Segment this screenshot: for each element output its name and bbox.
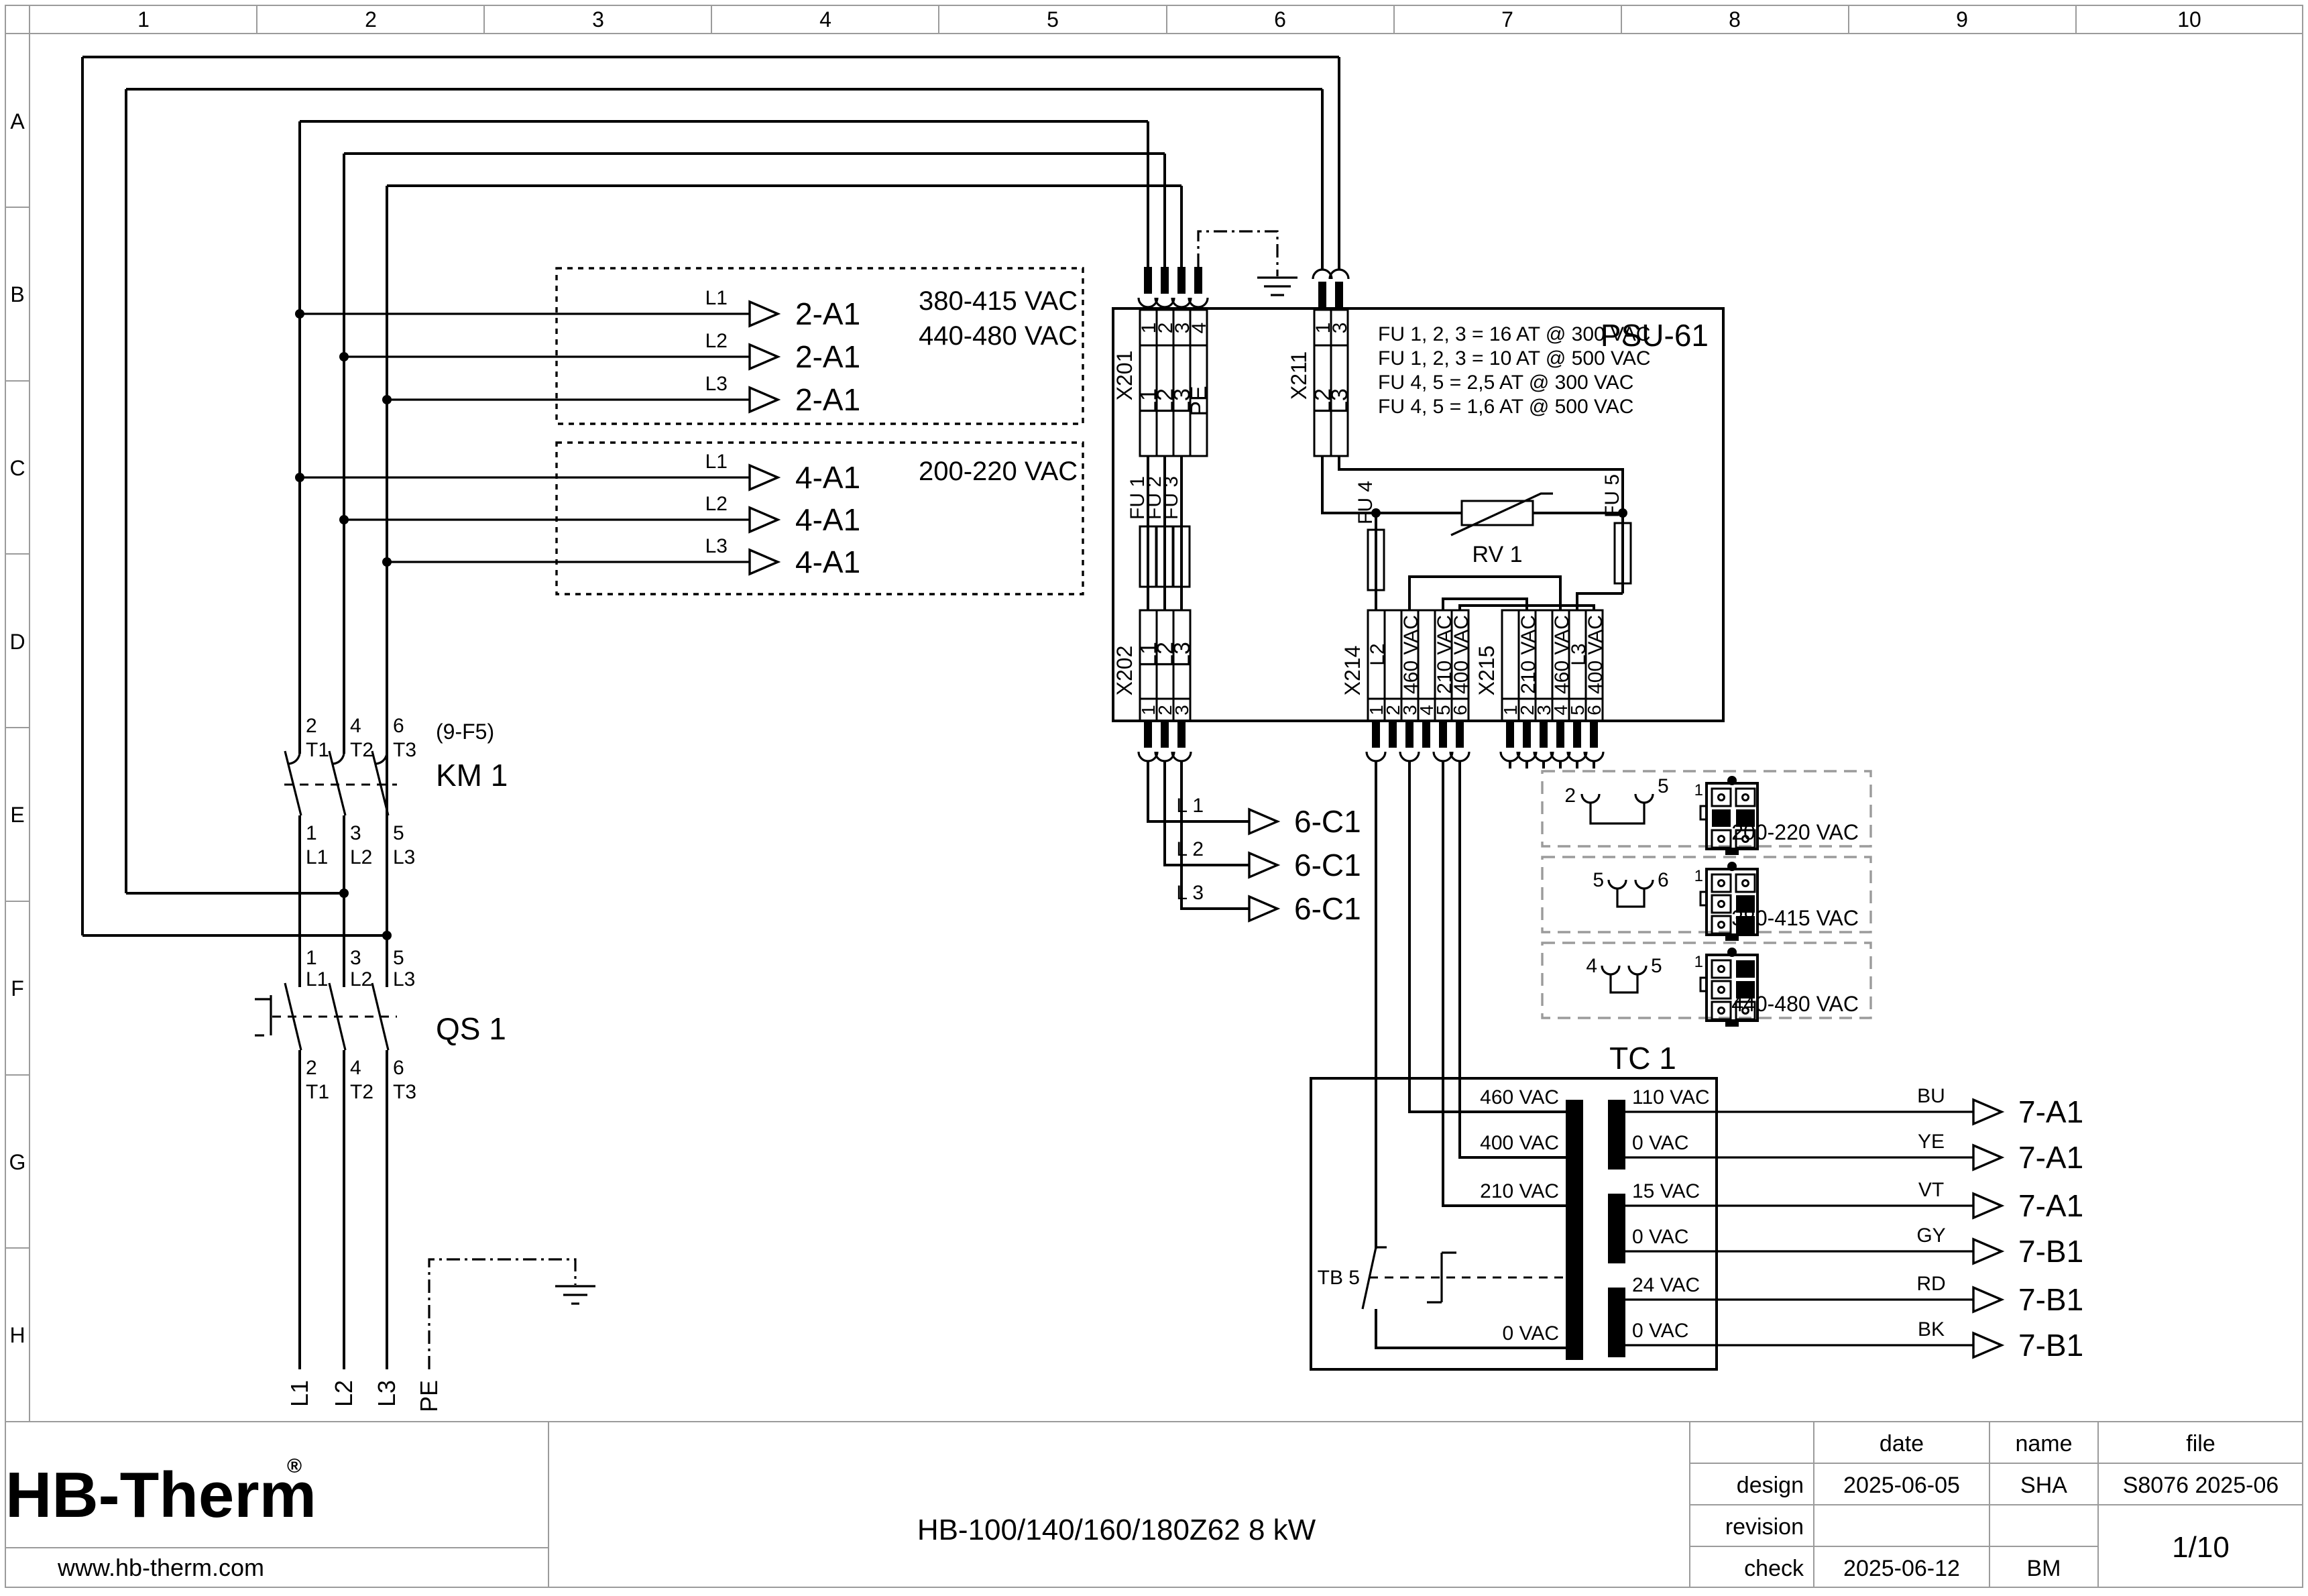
ruler-col: 7 xyxy=(1501,7,1513,32)
terminal-block-x214: X214 L2 460 VAC 210 VAC 400 VAC 1 2 3 4 … xyxy=(1340,610,1473,721)
disconnect-ref: QS 1 xyxy=(436,1011,506,1046)
signal-target: 7-A1 xyxy=(2018,1094,2083,1129)
fuse-note: FU 1, 2, 3 = 10 AT @ 500 VAC xyxy=(1378,347,1651,369)
terminal-pin: 6 xyxy=(1584,705,1605,716)
terminal-no: 4 xyxy=(350,1057,361,1079)
ruler-row: C xyxy=(9,456,25,480)
terminal-code: L2 xyxy=(350,968,372,990)
company-website: www.hb-therm.com xyxy=(57,1554,264,1581)
feed-group-4A1: L1 L2 L3 4-A1 4-A1 4-A1 200-220 VAC xyxy=(295,443,1083,594)
terminal-ref: X215 xyxy=(1475,646,1499,696)
secondary-tap: 0 VAC xyxy=(1632,1226,1688,1248)
terminal-block-x201: X201 1 2 3 4 L1 L2 L3 PE xyxy=(1112,310,1212,456)
signal-target: 4-A1 xyxy=(795,460,860,495)
terminal-no: 2 xyxy=(306,1057,317,1079)
terminal-block-x215: X215 210 VAC 460 VAC L3 400 VAC 1 2 3 4 … xyxy=(1475,610,1607,721)
thermal-label: TB 5 xyxy=(1318,1267,1360,1289)
contact-blade xyxy=(329,751,345,815)
control-feeds-6C1: L 1 L 2 L 3 6-C1 6-C1 6-C1 xyxy=(1148,761,1361,926)
ruler-frame: 1 2 3 4 5 6 7 8 9 10 A B C D E F G H xyxy=(5,5,2303,1587)
ruler-col: 5 xyxy=(1047,7,1059,32)
terminal-label: 460 VAC xyxy=(1400,615,1422,694)
signal-arrow xyxy=(750,465,778,490)
secondary-tap: 110 VAC xyxy=(1632,1086,1710,1108)
varistor-label: RV 1 xyxy=(1473,542,1523,567)
ruler-row: A xyxy=(10,109,25,133)
signal-arrow xyxy=(750,508,778,532)
signal-target: 2-A1 xyxy=(795,296,860,331)
terminal-no: 4 xyxy=(350,715,361,737)
jumper-pin-b: 6 xyxy=(1658,869,1669,891)
wire-color: BU xyxy=(1917,1085,1945,1107)
fuse-fu5: FU 5 xyxy=(1577,474,1631,610)
voltage-range: 440-480 VAC xyxy=(1731,992,1859,1016)
voltage-range: 380-415 VAC xyxy=(1731,906,1859,930)
terminal-label: L2 xyxy=(1367,643,1389,665)
fuses-fu123: FU 1 FU 2 FU 3 xyxy=(1127,456,1190,610)
terminal-label: 210 VAC xyxy=(1517,615,1540,694)
company-logo: HB-Therm xyxy=(5,1459,316,1531)
wires-tc1-primary xyxy=(1376,761,1566,1348)
transformer-ref: TC 1 xyxy=(1609,1041,1676,1076)
terminal-no: 6 xyxy=(393,715,404,737)
voltage-range: 200-220 VAC xyxy=(919,457,1078,486)
ruler-col: 9 xyxy=(1956,7,1968,32)
terminal-code: L3 xyxy=(393,846,415,868)
tb-design-name: SHA xyxy=(2020,1473,2067,1498)
signal-arrow xyxy=(750,388,778,412)
phase-label: L2 xyxy=(705,493,728,515)
terminal-code: L2 xyxy=(350,846,372,868)
signal-target: 6-C1 xyxy=(1294,891,1361,926)
terminal-code: L3 xyxy=(393,968,415,990)
signal-target: 2-A1 xyxy=(795,382,860,417)
mains-label: PE xyxy=(415,1380,443,1412)
ruler-col: 10 xyxy=(2177,7,2201,32)
fuse-label: FU 4 xyxy=(1354,481,1377,524)
ruler-row: D xyxy=(9,630,25,654)
tb-header-file: file xyxy=(2186,1431,2215,1457)
terminal-ref: X211 xyxy=(1287,351,1311,400)
secondary-outputs: 110 VAC 0 VAC 15 VAC 0 VAC 24 VAC 0 VAC … xyxy=(1625,1085,2083,1363)
terminal-no: 3 xyxy=(350,947,361,969)
terminal-no: 5 xyxy=(393,947,404,969)
signal-target: 7-B1 xyxy=(2018,1282,2083,1317)
connector-pin1-label: 1 xyxy=(1694,867,1703,885)
signal-arrow xyxy=(1249,853,1277,877)
signal-arrow xyxy=(750,302,778,326)
doc-title: HB-100/140/160/180Z62 8 kW xyxy=(917,1514,1316,1546)
secondary-tap: 15 VAC xyxy=(1632,1180,1700,1202)
secondary-winding-3 xyxy=(1608,1288,1625,1357)
fuse-label: FU 5 xyxy=(1601,474,1623,518)
tb-design-date: 2025-06-05 xyxy=(1843,1473,1960,1498)
ruler-col: 8 xyxy=(1729,7,1741,32)
terminal-ref: X214 xyxy=(1340,646,1365,696)
phase-label: L2 xyxy=(705,330,728,352)
primary-tap: 210 VAC xyxy=(1480,1180,1559,1202)
secondary-winding-1 xyxy=(1608,1100,1625,1170)
primary-tap: 0 VAC xyxy=(1503,1322,1559,1345)
contact-hook xyxy=(333,754,344,764)
jumper-option-380-415: 5 6 1 380-415 VAC xyxy=(1542,857,1871,941)
ruler-col: 6 xyxy=(1274,7,1286,32)
phase-label: L3 xyxy=(705,535,728,557)
fuse-note: FU 4, 5 = 1,6 AT @ 500 VAC xyxy=(1378,396,1633,418)
wire-color: VT xyxy=(1918,1179,1944,1201)
secondary-tap: 0 VAC xyxy=(1632,1132,1688,1154)
terminal-no: 6 xyxy=(393,1057,404,1079)
connector-pin1-label: 1 xyxy=(1694,953,1703,971)
tb-header-name: name xyxy=(2015,1431,2072,1457)
fuse-label: FU 3 xyxy=(1160,476,1182,520)
contact-hook xyxy=(376,754,387,764)
primary-tap: 400 VAC xyxy=(1480,1132,1559,1154)
phase-label: L 1 xyxy=(1176,795,1204,817)
tb-row-label: revision xyxy=(1725,1514,1804,1540)
secondary-tap: 24 VAC xyxy=(1632,1274,1700,1296)
secondary-winding-2 xyxy=(1608,1194,1625,1263)
jumper-option-440-480: 4 5 1 440-480 VAC xyxy=(1542,943,1871,1027)
contactor-km1: 2 4 6 T1 T2 T3 1 3 5 L1 L2 L3 (9-F5) KM … xyxy=(284,715,508,868)
jumper-pin-b: 5 xyxy=(1658,775,1669,797)
title-block: HB-Therm ® www.hb-therm.com HB-100/140/1… xyxy=(5,1422,2303,1587)
signal-target: 6-C1 xyxy=(1294,848,1361,882)
ruler-row: F xyxy=(11,976,24,1001)
tb-header-date: date xyxy=(1880,1431,1924,1457)
contact-hook xyxy=(289,754,300,764)
earth-symbol-mains xyxy=(555,1286,595,1304)
signal-arrow xyxy=(1973,1194,2002,1218)
tb-row-label: design xyxy=(1737,1473,1804,1498)
tb-file-no: S8076 2025-06 xyxy=(2123,1473,2279,1498)
connector-pin1-label: 1 xyxy=(1694,781,1703,799)
terminal-label: 400 VAC xyxy=(1450,615,1473,694)
phase-label: L1 xyxy=(705,451,728,473)
tb-check-name: BM xyxy=(2027,1556,2061,1581)
plug-connectors-bottom xyxy=(1139,722,1603,761)
signal-target: 4-A1 xyxy=(795,545,860,579)
mains-label: L3 xyxy=(373,1380,400,1407)
jumper-pin-a: 2 xyxy=(1564,785,1576,807)
jumper-pin-a: 4 xyxy=(1586,955,1597,977)
terminal-block-x211: X211 1 3 L2 L3 xyxy=(1287,310,1352,456)
terminal-code: T1 xyxy=(306,1081,329,1103)
terminal-ref: X202 xyxy=(1112,646,1137,696)
terminal-label: PE xyxy=(1186,386,1212,416)
wire-color: GY xyxy=(1916,1224,1945,1247)
terminal-label: 400 VAC xyxy=(1584,615,1607,694)
disconnect-qs1: 1 3 5 L1 L2 L3 2 4 6 T1 T2 T3 QS 1 xyxy=(255,947,506,1103)
wire-color: RD xyxy=(1916,1273,1945,1295)
tb-check-date: 2025-06-12 xyxy=(1843,1556,1960,1581)
voltage-range: 380-415 VAC xyxy=(919,286,1078,316)
ruler-row: B xyxy=(10,282,24,306)
mains-entry: L1 L2 L3 PE xyxy=(286,1259,595,1412)
terminal-pin: 3 xyxy=(1329,323,1351,334)
mains-label: L2 xyxy=(330,1380,357,1407)
phase-label: L1 xyxy=(705,287,728,309)
signal-arrow xyxy=(750,550,778,574)
earth-symbol-psu xyxy=(1198,231,1297,295)
terminal-code: T3 xyxy=(393,739,416,761)
ruler-row: G xyxy=(9,1150,26,1174)
contact-blade xyxy=(285,751,301,815)
jumper-pin-b: 5 xyxy=(1651,955,1662,977)
ruler-row: E xyxy=(10,803,24,827)
terminal-pin: 4 xyxy=(1188,323,1210,334)
feed-group-2A1: L1 L2 L3 2-A1 2-A1 2-A1 380-415 VAC 440-… xyxy=(295,268,1083,424)
phase-label: L 2 xyxy=(1176,838,1204,860)
signal-target: 7-A1 xyxy=(2018,1140,2083,1175)
terminal-no: 2 xyxy=(306,715,317,737)
wire-color: BK xyxy=(1918,1318,1945,1341)
ruler-col: 3 xyxy=(592,7,604,32)
signal-arrow xyxy=(1249,809,1277,834)
plug-connectors-x201 xyxy=(1139,267,1208,310)
plug-connectors-x211 xyxy=(1313,270,1348,308)
thermal-contact-tb5: TB 5 xyxy=(1318,1247,1566,1309)
terminal-ref: X201 xyxy=(1112,351,1137,401)
terminal-code: T3 xyxy=(393,1081,416,1103)
signal-arrow xyxy=(1973,1100,2002,1124)
mains-label: L1 xyxy=(286,1380,313,1407)
jumper-pin-a: 5 xyxy=(1593,869,1604,891)
signal-target: 4-A1 xyxy=(795,502,860,537)
tb-page-number: 1/10 xyxy=(2172,1531,2230,1564)
registered-mark: ® xyxy=(287,1455,302,1477)
terminal-no: 3 xyxy=(350,822,361,844)
wires-x215-stubs xyxy=(1510,761,1594,768)
terminal-no: 1 xyxy=(306,822,317,844)
ruler-col: 2 xyxy=(365,7,377,32)
jumper-option-200-220: 2 5 1 200-220 VAC xyxy=(1542,771,1871,855)
signal-target: 2-A1 xyxy=(795,339,860,374)
secondary-tap: 0 VAC xyxy=(1632,1320,1688,1342)
fuse-note: FU 4, 5 = 2,5 AT @ 300 VAC xyxy=(1378,372,1633,394)
terminal-code: T2 xyxy=(350,1081,373,1103)
signal-arrow xyxy=(1973,1145,2002,1170)
contactor-ref: KM 1 xyxy=(436,758,508,793)
terminal-no: 1 xyxy=(306,947,317,969)
terminal-pin: 3 xyxy=(1171,705,1192,716)
wires-tap-jumpers xyxy=(1409,577,1594,610)
signal-arrow xyxy=(1973,1333,2002,1357)
primary-tap: 460 VAC xyxy=(1480,1086,1559,1108)
voltage-range: 440-480 VAC xyxy=(919,321,1078,351)
contactor-note: (9-F5) xyxy=(436,720,494,744)
switch-handle xyxy=(255,995,271,1035)
signal-arrow xyxy=(750,345,778,369)
wire-color: YE xyxy=(1918,1131,1945,1153)
signal-arrow xyxy=(1973,1288,2002,1312)
signal-target: 7-A1 xyxy=(2018,1188,2083,1223)
ruler-col: 4 xyxy=(819,7,831,32)
terminal-code: T2 xyxy=(350,739,373,761)
terminal-pin: 6 xyxy=(1450,705,1470,716)
schematic-sheet: 1 2 3 4 5 6 7 8 9 10 A B C D E F G H xyxy=(0,0,2308,1593)
terminal-code: L1 xyxy=(306,846,328,868)
phase-label: L 3 xyxy=(1176,882,1204,904)
signal-target: 7-B1 xyxy=(2018,1234,2083,1269)
terminal-code: L1 xyxy=(306,968,328,990)
terminal-label: L3 xyxy=(1327,388,1352,414)
signal-arrow xyxy=(1973,1239,2002,1263)
fuse-fu4: FU 4 xyxy=(1354,481,1384,610)
terminal-no: 5 xyxy=(393,822,404,844)
terminal-code: T1 xyxy=(306,739,329,761)
ruler-col: 1 xyxy=(137,7,150,32)
ruler-row: H xyxy=(9,1323,25,1347)
terminal-block-x202: X202 L1 L2 L3 1 2 3 xyxy=(1112,610,1195,721)
signal-target: 6-C1 xyxy=(1294,804,1361,839)
terminal-label: L3 xyxy=(1169,642,1195,667)
tb-row-label: check xyxy=(1744,1556,1804,1581)
signal-arrow xyxy=(1249,897,1277,921)
primary-winding xyxy=(1566,1100,1583,1360)
fuse-note: FU 1, 2, 3 = 16 AT @ 300 VAC xyxy=(1378,323,1651,345)
signal-target: 7-B1 xyxy=(2018,1328,2083,1363)
voltage-range: 200-220 VAC xyxy=(1731,820,1859,844)
phase-label: L3 xyxy=(705,373,728,395)
psu-61-block: PSU-61 FU 1, 2, 3 = 16 AT @ 300 VAC FU 1… xyxy=(1112,231,1723,761)
